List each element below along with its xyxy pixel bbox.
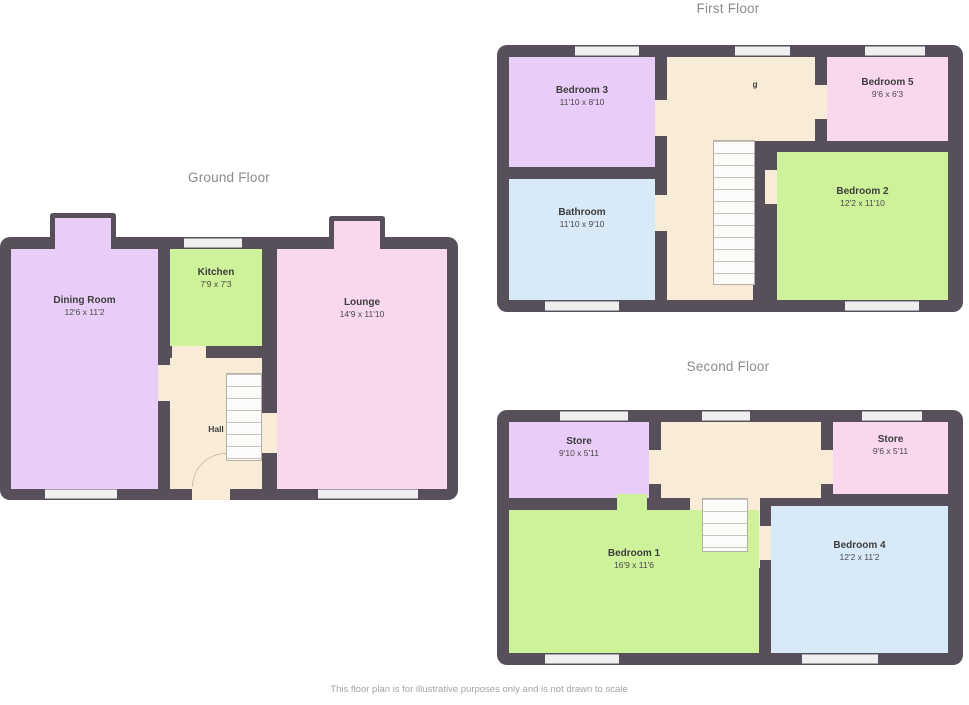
room-label: Bedroom 3 11'10 x 8'10 xyxy=(509,85,655,108)
room-name: Bathroom xyxy=(509,207,655,218)
room-name: Bedroom 3 xyxy=(509,85,655,96)
window xyxy=(802,654,878,664)
door-opening xyxy=(765,170,777,204)
window xyxy=(735,46,790,56)
room-name: Store xyxy=(509,436,649,447)
room-name: Bedroom 2 xyxy=(777,186,948,197)
room-bedroom3: Bedroom 3 11'10 x 8'10 xyxy=(509,57,655,167)
window xyxy=(575,46,639,56)
window xyxy=(862,411,922,421)
first-floor-title: First Floor xyxy=(578,1,878,16)
room-dims: 11'10 x 9'10 xyxy=(509,219,655,230)
ground-floor-plan: Dining Room 12'6 x 11'2 Kitchen 7'9 x 7'… xyxy=(0,237,458,500)
window xyxy=(865,46,925,56)
room-dims: 9'6 x 5'11 xyxy=(833,446,948,457)
room-name: Lounge xyxy=(277,297,447,308)
room-dims: 12'2 x 11'10 xyxy=(777,198,948,209)
door-opening xyxy=(815,85,827,119)
window xyxy=(545,301,619,311)
room-label: Bedroom 5 9'6 x 6'3 xyxy=(827,77,948,100)
room-label: Bedroom 2 12'2 x 11'10 xyxy=(777,186,948,209)
room-dims: 9'10 x 5'11 xyxy=(509,448,649,459)
room-dims: 11'10 x 8'10 xyxy=(509,97,655,108)
room-label: Store 9'10 x 5'11 xyxy=(509,436,649,459)
room-name: Bedroom 4 xyxy=(771,540,948,551)
room-dims: 12'2 x 11'2 xyxy=(771,552,948,563)
room-dims: 9'6 x 6'3 xyxy=(827,89,948,100)
room-lounge: Lounge 14'9 x 11'10 xyxy=(277,249,447,489)
room-label: Store 9'6 x 5'11 xyxy=(833,434,948,457)
room-label: Kitchen 7'9 x 7'3 xyxy=(170,267,262,290)
room-dims: 7'9 x 7'3 xyxy=(170,279,262,290)
window xyxy=(545,654,619,664)
door-opening xyxy=(655,195,667,231)
room-store: Store 9'10 x 5'11 xyxy=(509,422,649,498)
room-bedroom1-notch xyxy=(617,494,647,512)
room-label: Lounge 14'9 x 11'10 xyxy=(277,297,447,320)
room-dims: 12'6 x 11'2 xyxy=(11,307,158,318)
room-bathroom: Bathroom 11'10 x 9'10 xyxy=(509,179,655,300)
window xyxy=(560,411,628,421)
first-floor-plan: Landing Bedroom 3 11'10 x 8'10 Bathroom … xyxy=(497,45,963,312)
room-dining: Dining Room 12'6 x 11'2 xyxy=(11,249,158,489)
second-floor-plan: Landing Store 9'10 x 5'11 Store 9'6 x 5'… xyxy=(497,410,963,665)
room-dims: 14'9 x 11'10 xyxy=(277,309,447,320)
room-name: Kitchen xyxy=(170,267,262,278)
room-bedroom5: Bedroom 5 9'6 x 6'3 xyxy=(827,57,948,141)
window xyxy=(45,489,117,499)
room-name: Bedroom 5 xyxy=(827,77,948,88)
room-dims: 16'9 x 11'6 xyxy=(509,560,759,571)
door-opening xyxy=(172,346,206,358)
floorplan-page: Ground Floor Dining Room 12'6 x 11'2 Kit… xyxy=(0,0,969,705)
front-door-opening xyxy=(192,489,230,500)
room-bedroom4: Bedroom 4 12'2 x 11'2 xyxy=(771,506,948,653)
room-label: Bathroom 11'10 x 9'10 xyxy=(509,207,655,230)
window xyxy=(318,489,418,499)
door-opening xyxy=(759,526,771,560)
room-eaves-store: Store 9'6 x 5'11 xyxy=(833,422,948,494)
door-opening xyxy=(262,413,277,453)
window xyxy=(184,238,242,248)
bay-window xyxy=(50,213,116,249)
disclaimer-text: This floor plan is for illustrative purp… xyxy=(184,684,774,695)
ground-floor-title: Ground Floor xyxy=(79,170,379,185)
room-name: Store xyxy=(833,434,948,445)
staircase xyxy=(702,498,748,552)
second-floor-title: Second Floor xyxy=(578,359,878,374)
staircase xyxy=(226,373,262,461)
staircase xyxy=(713,140,755,285)
window xyxy=(702,411,750,421)
door-opening xyxy=(655,100,667,136)
room-bedroom2: Bedroom 2 12'2 x 11'10 xyxy=(777,152,948,300)
room-label: Bedroom 4 12'2 x 11'2 xyxy=(771,540,948,563)
window xyxy=(845,301,919,311)
door-opening xyxy=(821,450,833,484)
room-kitchen: Kitchen 7'9 x 7'3 xyxy=(170,249,262,346)
bay-window xyxy=(329,216,385,249)
room-name: Dining Room xyxy=(11,295,158,306)
door-opening xyxy=(158,365,170,401)
door-opening xyxy=(649,450,661,484)
room-label: Dining Room 12'6 x 11'2 xyxy=(11,295,158,318)
